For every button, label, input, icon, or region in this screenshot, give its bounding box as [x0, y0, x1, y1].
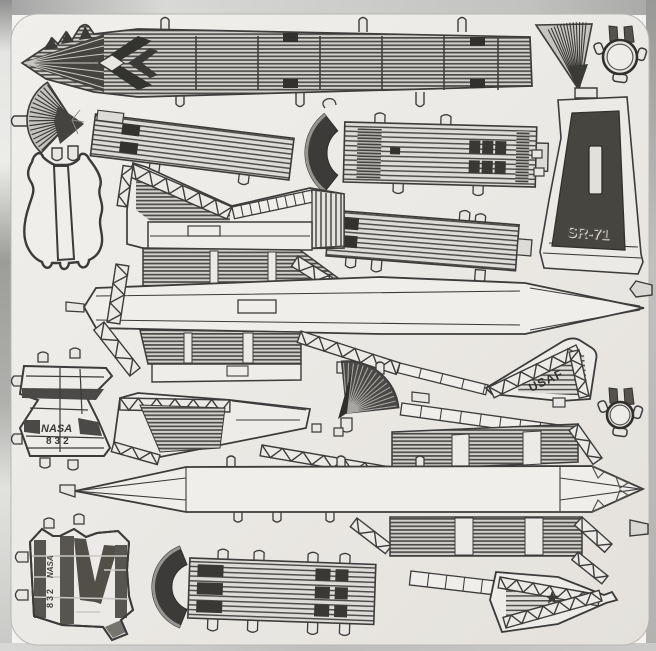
svg-text:832: 832 — [46, 436, 72, 447]
svg-text:NASA: NASA — [41, 423, 72, 435]
svg-text:NASA: NASA — [46, 555, 55, 578]
svg-text:SR-71: SR-71 — [566, 224, 610, 244]
svg-text:832: 832 — [45, 587, 55, 608]
